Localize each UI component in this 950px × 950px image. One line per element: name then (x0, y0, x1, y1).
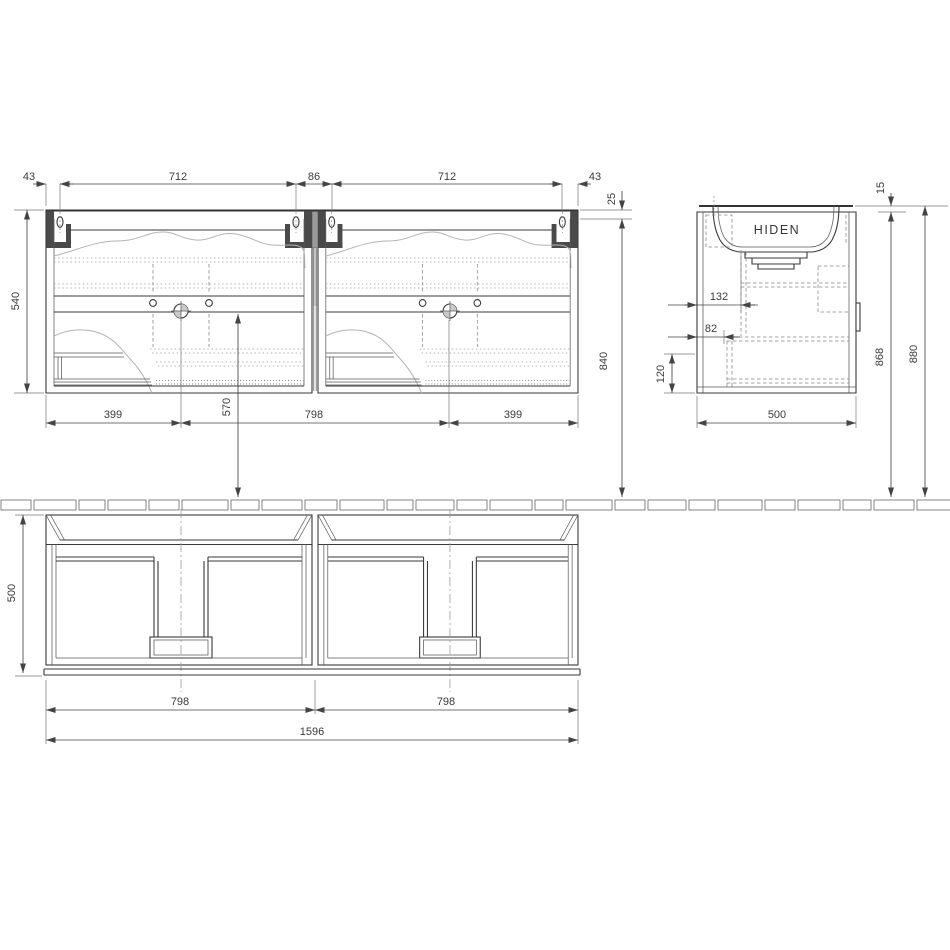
floor-plank (615, 500, 645, 510)
front-view (46, 210, 578, 393)
floor-plank (457, 500, 487, 510)
vanity-technical-drawing: HIDEN 43 712 86 712 43 25 840 540 (0, 0, 950, 950)
dim-label-840: 840 (598, 352, 610, 370)
front-left-cabinet (46, 210, 312, 393)
dim-label-132: 132 (710, 291, 728, 303)
floor-plank (490, 500, 532, 510)
dimensions-side: 15 868 880 132 82 120 500 (655, 182, 948, 497)
plan-left-cabinet (46, 509, 312, 692)
floor-plank (416, 500, 454, 510)
dim-label-500-side: 500 (768, 409, 786, 421)
dim-label-798-front: 798 (305, 409, 323, 421)
dimensions-plan: 500 798 798 1596 (6, 515, 578, 744)
dim-label-868: 868 (874, 348, 886, 366)
dim-label-712-left: 712 (169, 171, 187, 183)
floor-strip (1, 500, 950, 510)
floor-plank (387, 500, 413, 510)
basin-hiden-label: HIDEN (754, 223, 800, 237)
floor-plank (1, 500, 31, 510)
dim-label-86: 86 (308, 171, 320, 183)
floor-plank (535, 500, 563, 510)
floor-plank (34, 500, 76, 510)
floor-plank (149, 500, 179, 510)
front-right-cabinet (318, 210, 578, 393)
basin-drain-boss (745, 252, 807, 269)
dim-label-712-right: 712 (438, 171, 456, 183)
floor-plank (305, 500, 337, 510)
cabinet-gap-section (312, 211, 318, 248)
floor-plank (566, 500, 612, 510)
plan-plinth (44, 669, 580, 675)
dim-label-798-plan-right: 798 (437, 696, 455, 708)
floor-plank (798, 500, 840, 510)
dim-label-540: 540 (10, 292, 22, 310)
floor-plank (765, 500, 795, 510)
wall-rail-section (856, 303, 860, 331)
plan-right-cabinet (318, 509, 578, 692)
floor-plank (262, 500, 302, 510)
dim-label-570: 570 (221, 398, 233, 416)
floor-plank (718, 500, 762, 510)
floor-plank (79, 500, 105, 510)
dim-label-399-right: 399 (504, 409, 522, 421)
floor-plank (340, 500, 384, 510)
hidden-drawer-lines (727, 250, 849, 387)
floor-plank (843, 500, 871, 510)
floor-plank (108, 500, 146, 510)
floor-plank (182, 500, 228, 510)
dim-label-25: 25 (606, 193, 618, 205)
dim-label-82: 82 (705, 323, 717, 335)
dim-label-15: 15 (875, 182, 887, 194)
dim-label-43-left: 43 (23, 171, 35, 183)
plan-view (44, 509, 580, 692)
floor-plank (689, 500, 715, 510)
technical-drawing-page: HIDEN 43 712 86 712 43 25 840 540 (0, 0, 950, 950)
floor-plank (231, 500, 259, 510)
dim-label-880: 880 (908, 345, 920, 363)
floor-plank (874, 500, 914, 510)
floor-plank (917, 500, 950, 510)
dim-label-1596: 1596 (300, 726, 324, 738)
dim-label-43-right: 43 (589, 171, 601, 183)
dim-label-500-plan: 500 (6, 584, 18, 602)
dim-label-798-plan-left: 798 (171, 696, 189, 708)
dim-label-399-left: 399 (104, 409, 122, 421)
dim-label-120: 120 (655, 365, 667, 383)
floor-plank (648, 500, 686, 510)
